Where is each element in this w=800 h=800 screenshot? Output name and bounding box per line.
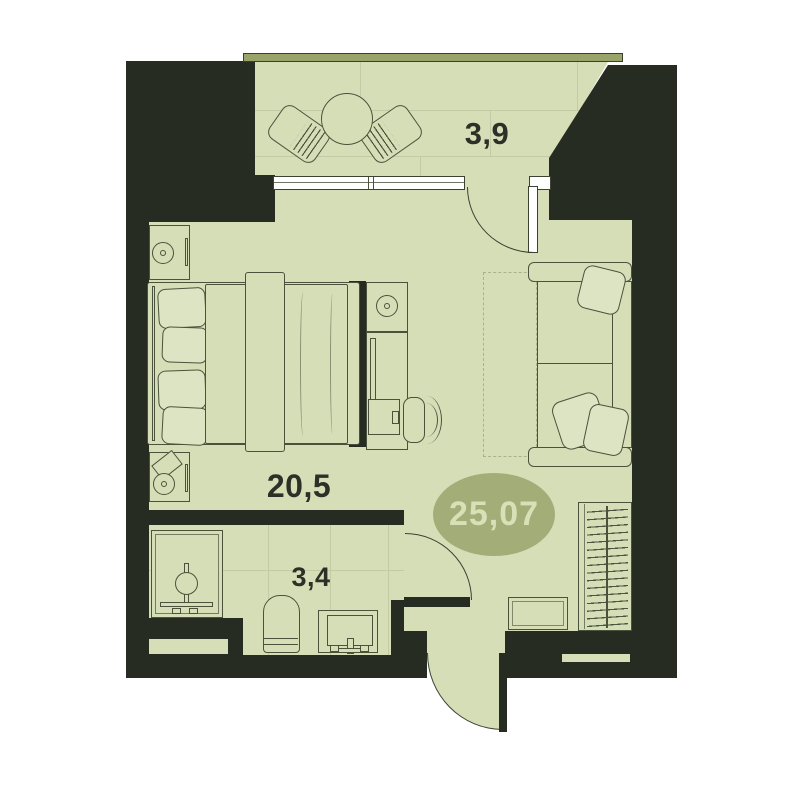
balcony-railing	[243, 53, 623, 62]
total-area-badge: 25,07	[433, 473, 555, 556]
faucet-handle	[330, 645, 339, 652]
bed-pillow	[157, 287, 207, 329]
bed-headboard	[152, 286, 155, 441]
balcony-table	[321, 93, 373, 145]
shoe-cabinet-inner	[512, 601, 564, 626]
window-main	[273, 176, 465, 190]
bed-throw-runner	[245, 272, 285, 452]
entry-threshold	[427, 631, 505, 653]
balcony-tile-line	[255, 110, 610, 111]
sofa-seat-line	[537, 363, 612, 364]
wall-right	[632, 65, 677, 653]
wall-left	[126, 222, 149, 678]
wardrobe-edge-line	[584, 504, 585, 629]
monitor-stand	[392, 411, 399, 424]
room-area-label: 20,5	[249, 468, 349, 502]
blanket-fold	[300, 292, 306, 436]
nightstand-handle	[185, 464, 188, 492]
sofa-foldout-zone	[483, 272, 537, 457]
toilet-cistern-line	[264, 638, 298, 639]
balcony-area-label: 3,9	[447, 116, 527, 150]
wall-bathroom-top	[149, 510, 404, 525]
wall-entry-step	[404, 631, 427, 655]
wall-top-left	[126, 61, 255, 175]
bed-pillow	[161, 326, 208, 364]
wall-niche	[562, 654, 630, 662]
lamp-dot	[160, 250, 166, 256]
balcony-tile-line	[420, 156, 421, 176]
lamp-dot	[384, 303, 390, 309]
toilet-cistern-line	[264, 644, 298, 645]
wall-bathroom-stub	[391, 600, 404, 655]
bathroom-area-label: 3,4	[281, 562, 341, 592]
entry-door-swing	[427, 653, 503, 730]
blanket-fold	[330, 294, 335, 434]
floor-plan: 3,9 20,5 3,4 25,07	[0, 0, 800, 800]
shower-foot	[172, 608, 181, 614]
wall-top-left	[126, 175, 275, 222]
shower-head	[175, 572, 198, 595]
bed-pillow	[157, 369, 206, 411]
faucet-handle	[360, 645, 369, 652]
wardrobe-rail	[606, 506, 608, 628]
shower-bar	[160, 602, 213, 607]
bed-pillow	[161, 406, 209, 446]
lamp-dot	[161, 481, 167, 487]
window-mullion	[368, 177, 369, 189]
nightstand-handle	[185, 238, 188, 266]
faucet-bar	[338, 648, 362, 653]
window-frame-line	[274, 182, 464, 183]
desk-chair-back	[414, 403, 438, 437]
balcony-tile-line	[577, 62, 578, 110]
shower-foot	[189, 608, 198, 614]
bathroom-tile-line	[388, 525, 389, 655]
window-mullion	[373, 177, 374, 189]
bathroom-door-leaf	[404, 597, 470, 607]
toilet	[263, 595, 300, 653]
wall-bottom-left	[126, 655, 427, 678]
entry-door-leaf	[499, 653, 507, 732]
wall-niche	[149, 639, 228, 654]
bathroom-doorway-gap	[391, 525, 404, 600]
